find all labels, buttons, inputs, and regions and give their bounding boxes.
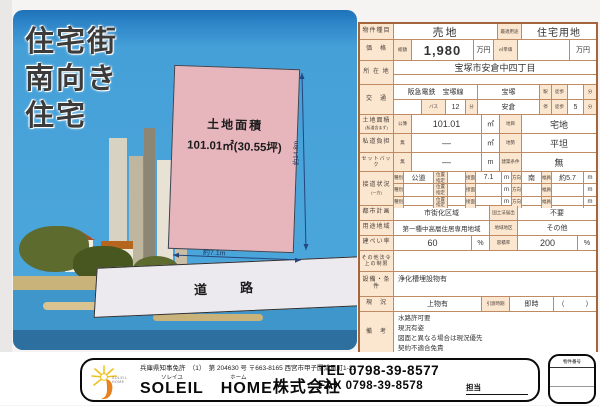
national-land-value: 不要 [518,206,596,220]
soleil-sun-logo: SOLEIL HOME [88,363,138,401]
property-spec-table: 物件種目 売地 最適用途 住宅用地 価 格 総額 1,980 万円 ㎡単価 万円… [358,22,598,356]
row-label: 建ぺい率 [360,236,394,250]
walk-minutes: 5 [568,100,584,114]
location-value: 宝塚市安倉中四丁目 [394,61,596,74]
row-label: 私道負担 [360,134,394,152]
sub-label: 無 [394,153,412,171]
minutes-unit: 分 [584,100,596,114]
bus-label: バス [422,100,446,114]
fax-value: 0798-39-8578 [346,380,424,392]
sandbar-shape [153,314,263,321]
frontage-value [476,184,502,195]
national-land-label: 国土法届出 [490,206,518,220]
remark-line: 水路許可要 [398,314,431,324]
row-current-state: 現 況 上物有 引渡時期 即時 （ ） [360,297,596,312]
row-label: 交 通 [360,85,394,114]
road-width-value [552,184,584,195]
build-condition-value: 無 [522,153,596,171]
row-facilities: 設備・条件 浄化槽埋設物有 [360,272,596,297]
m-unit: m [502,172,512,183]
row-label: 接道状況 (一方) [360,172,394,205]
direction-header: 方向 [512,172,522,183]
label-note: (私道含まず) [365,125,388,130]
sub-label: 公簿 [394,115,412,133]
label-text: 接道状況 [362,182,390,190]
road-label: 道 路 [194,276,264,298]
land-area-value: 101.01 [412,115,482,133]
contact-numbers: TEL 0798-39-8577 FAX 0798-39-8578 [318,363,439,394]
current-state-value: 上物有 [394,297,482,311]
handover-value: 即時 [510,297,554,311]
land-category-label: 地目 [500,115,522,133]
row-price: 価 格 総額 1,980 万円 ㎡単価 万円 [360,40,596,61]
license-number: 兵庫県知事免許 （1） 第 204630 号 [140,365,247,372]
row-label: その他法令上の制限 [360,251,394,271]
company-part: HOME [204,381,273,397]
blank-cell [394,100,422,114]
m-unit: m [584,172,596,183]
property-type-value: 売地 [394,24,498,39]
staff-in-charge-line: 担当 [466,382,528,395]
bus-minutes: 12 [446,100,466,114]
position-header: 位置指定 [434,172,448,183]
tel-label: TEL [318,363,349,378]
row-city-planning: 都市計画 市街化区域 国土法届出 不要 [360,206,596,221]
plot-title: 土地面積 [207,115,264,134]
percent-unit: % [472,236,490,250]
stamp-box-header: 物件番号 [550,356,594,368]
private-road-value: ― [412,134,482,152]
terrain-value: 平坦 [522,134,596,152]
m-unit: m [584,184,596,195]
fax-label: FAX [318,380,346,392]
row-label: 設備・条件 [360,272,394,296]
direction-value: 南 [522,172,542,183]
row-label: 土地面積 (私道含まず) [360,115,394,133]
handover-paren: （ ） [554,297,596,311]
illustration-panel: 住宅街 南向き 住宅 道 路 土地面積 101.01㎡(30.55坪) 約14.… [13,10,357,350]
row-label: 所 在 地 [360,61,394,84]
row-label: 備 考 [360,312,394,354]
walk-label: 徒歩 [552,100,568,114]
bus-stop-name: 安倉 [478,100,540,114]
row-land-area: 土地面積 (私道含まず) 公簿 101.01 ㎡ 地目 宅地 [360,115,596,134]
road-type-header: 種別 [394,172,404,183]
direction-header: 方向 [512,184,522,195]
road-width-value: 約5.7 [552,172,584,183]
tel-value: 0798-39-8577 [349,363,439,378]
row-other-restrictions: その他法令上の制限 [360,251,596,272]
price-value: 1,980 [412,40,474,60]
row-label: 現 況 [360,297,394,311]
tel-number: TEL 0798-39-8577 [318,363,439,379]
stop-suffix: 停 [540,100,552,114]
frontage-value: 7.1 [476,172,502,183]
plot-depth-label: 約14.8m [290,123,300,183]
terrain-label: 地勢 [500,134,522,152]
headline-line: 南向き [25,61,118,98]
percent-unit: % [578,236,596,250]
footer-band: SOLEIL HOME 兵庫県知事免許 （1） 第 204630 号 〒663-… [0,352,600,405]
remark-line: 現況有姿 [398,324,424,334]
row-setback: セットバック 無 ― m 建築条件 無 [360,153,596,172]
area-unit: ㎡ [482,134,500,152]
best-use-value: 住宅用地 [522,24,596,39]
unit-price-unit: 万円 [570,40,596,60]
flyer-page: 住宅街 南向き 住宅 道 路 土地面積 101.01㎡(30.55坪) 約14.… [0,0,600,405]
setback-value: ― [412,153,482,171]
other-restrictions-value [394,251,596,271]
row-coverage-ratio: 建ぺい率 60 % 容積率 200 % [360,236,596,251]
row-remarks: 備 考 水路許可要 現況有姿 図面と異なる場合は現況優先 契約不適合免責 [360,312,596,354]
walk-label: 徒歩 [552,85,568,99]
page-margin [0,0,12,352]
row-label: 最適用途 [498,24,522,39]
label-note: (一方) [371,190,382,195]
build-condition-label: 建築条件 [500,153,522,171]
row-label: セットバック [360,153,394,171]
station-suffix: 駅 [540,85,552,99]
headline-text: 住宅街 南向き 住宅 [25,24,118,135]
frontage-header: 接面 [466,172,476,183]
row-access: 交 通 阪急電鉄 宝塚線 宝塚 駅 徒歩 分 バス 12 分 安倉 停 [360,85,596,115]
station-name: 宝塚 [478,85,540,99]
district-value: その他 [518,221,596,235]
plot-width-label: 約7.1m [203,248,226,259]
frontage-header: 接面 [466,184,476,195]
sub-label: 無 [394,134,412,152]
plot-area-value: 101.01㎡(30.55坪) [187,136,282,155]
walk-minutes [568,85,584,99]
deep-water-band [13,330,357,350]
unit-price-label: ㎡単価 [494,40,518,60]
row-private-road: 私道負担 無 ― ㎡ 地勢 平坦 [360,134,596,153]
row-label: 用途地域 [360,221,394,235]
property-number-stamp-box: 物件番号 [548,354,596,404]
row-road-contact: 接道状況 (一方) 種別 公道 位置指定 接面 7.1 m 方向 南 幅員 約5… [360,172,596,206]
railway-line: 阪急電鉄 宝塚線 [394,85,478,99]
minutes-unit: 分 [466,100,478,114]
headline-line: 住宅街 [25,24,118,61]
width-header: 幅員 [542,172,552,183]
handover-label: 引渡時期 [482,297,510,311]
row-label: 都市計画 [360,206,394,220]
road-type-header: 種別 [394,184,404,195]
row-location: 所 在 地 宝塚市安倉中四丁目 [360,61,596,85]
logo-text: SOLEIL HOME [112,376,138,384]
road-type-value [404,184,434,195]
minutes-unit: 分 [584,85,596,99]
position-value [448,172,466,183]
company-part: SOLEIL [140,381,204,397]
facilities-value: 浄化槽埋設物有 [394,272,596,296]
city-planning-value: 市街化区域 [394,206,490,220]
area-unit: ㎡ [482,115,500,133]
road-type-value: 公道 [404,172,434,183]
floor-ratio-label: 容積率 [490,236,518,250]
coverage-value: 60 [394,236,472,250]
remarks-text: 水路許可要 現況有姿 図面と異なる場合は現況優先 契約不適合免責 [394,312,596,354]
agent-info-box: SOLEIL HOME 兵庫県知事免許 （1） 第 204630 号 〒663-… [80,358,540,402]
row-property-type: 物件種目 売地 最適用途 住宅用地 [360,24,596,40]
land-category-value: 宅地 [522,115,596,133]
position-header: 位置指定 [434,184,448,195]
sub-label: 総額 [394,40,412,60]
floor-ratio-value: 200 [518,236,578,250]
unit-price-value [518,40,570,60]
row-zoning: 用途地域 第一種中高層住居専用地域 地域地区 その他 [360,221,596,236]
width-header: 幅員 [542,184,552,195]
row-label: 価 格 [360,40,394,60]
remark-line: 図面と異なる場合は現況優先 [398,334,483,344]
zoning-value: 第一種中高層住居専用地域 [394,221,490,235]
row-label: 物件種目 [360,24,394,39]
district-label: 地域地区 [490,221,518,235]
position-value [448,184,466,195]
headline-line: 住宅 [25,98,118,135]
fax-number: FAX 0798-39-8578 [318,380,439,394]
m-unit: m [502,184,512,195]
location-extra [394,75,596,84]
stamp-box-cell [550,368,594,387]
land-plot-shape: 土地面積 101.01㎡(30.55坪) [168,65,300,253]
direction-value [522,184,542,195]
company-name: ソレイユSOLEIL ホーム HOME 株式会社 [140,373,341,397]
price-unit: 万円 [474,40,494,60]
length-unit: m [482,153,500,171]
